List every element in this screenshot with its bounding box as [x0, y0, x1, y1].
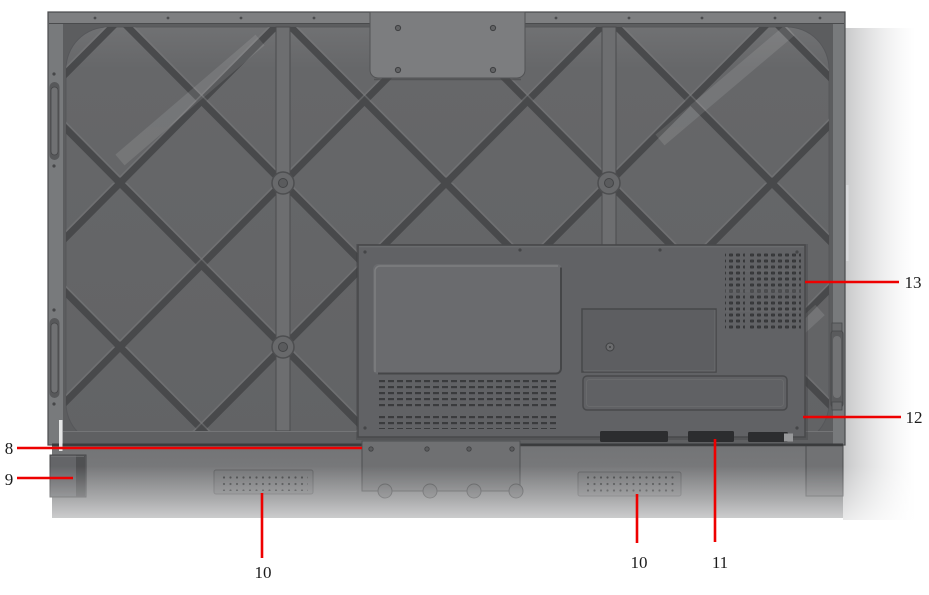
module-vent-lower — [378, 416, 556, 429]
module-long-slot — [583, 376, 787, 410]
figure-stage: 8 9 10 10 11 12 13 — [0, 0, 929, 595]
top-mount-bracket — [370, 12, 525, 80]
handle-left-bottom — [51, 323, 58, 393]
handle-left-top — [51, 87, 58, 155]
callout-12-label: 12 — [906, 408, 923, 427]
callout-8-label: 8 — [5, 439, 14, 458]
handle-right — [833, 336, 841, 398]
module-recessed-panel — [582, 309, 716, 372]
module-vent-upper — [378, 378, 556, 408]
rear-view-diagram: 8 9 10 10 11 12 13 — [0, 0, 929, 595]
electronics-module — [356, 244, 808, 442]
callout-13-label: 13 — [905, 273, 922, 292]
module-vent-grille — [725, 251, 801, 331]
bottom-fade — [0, 466, 929, 576]
edge-light-slit — [846, 185, 849, 261]
callout-10-left-label: 10 — [255, 563, 272, 582]
module-raised-panel — [373, 264, 562, 374]
callout-11-label: 11 — [712, 553, 728, 572]
stylus-pin — [59, 420, 63, 451]
module-bottom-ports — [600, 431, 793, 442]
callout-10-right-label: 10 — [631, 553, 648, 572]
callout-9-label: 9 — [5, 470, 14, 489]
